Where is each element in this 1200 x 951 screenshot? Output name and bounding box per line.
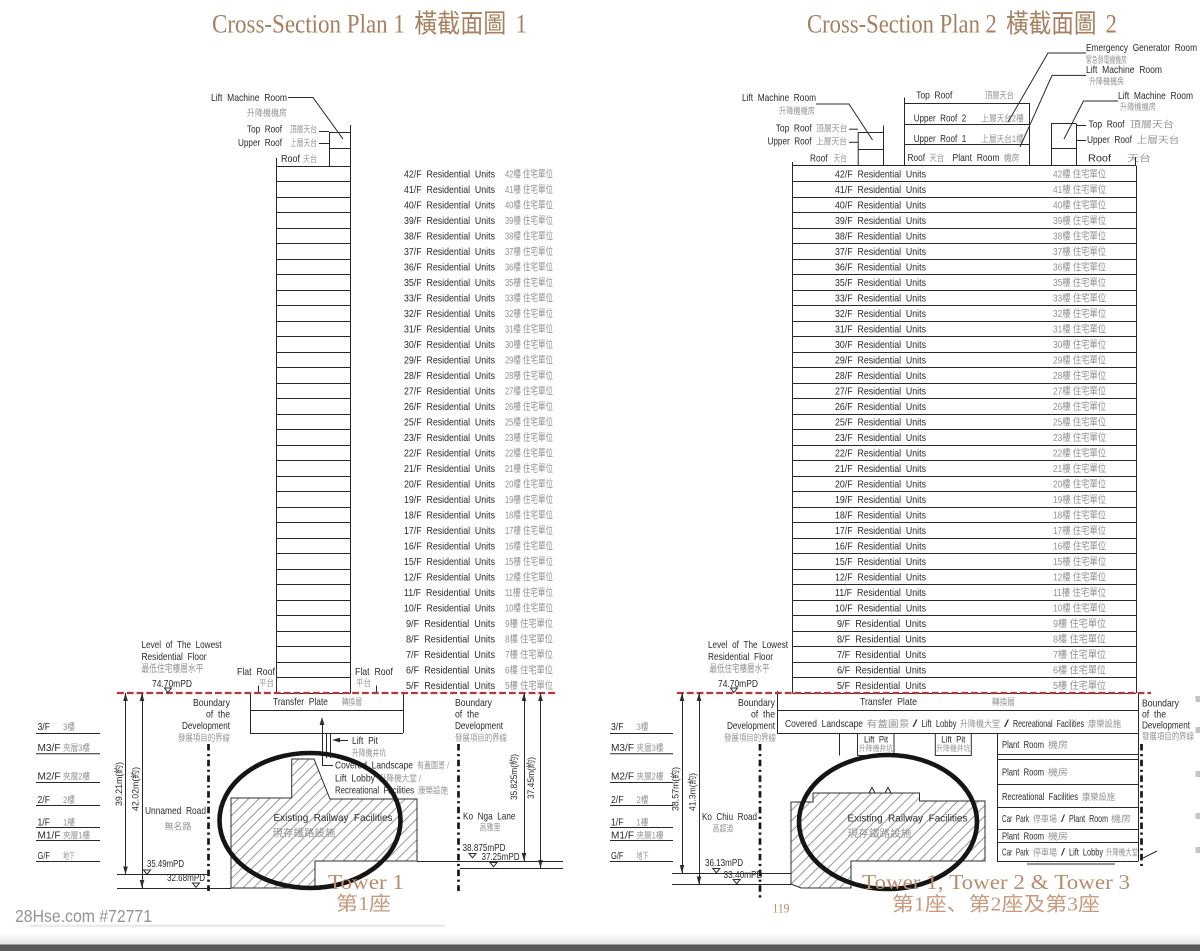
- svg-text:M2/F: M2/F: [38, 771, 61, 783]
- svg-text:Car Park: Car Park: [1002, 847, 1029, 859]
- svg-text:升降機大堂: 升降機大堂: [1106, 847, 1138, 858]
- svg-text:25樓 住宅單位: 25樓 住宅單位: [1053, 416, 1106, 429]
- svg-text:Existing Railway Facilities: Existing Railway Facilities: [274, 812, 393, 824]
- svg-text:38樓 住宅單位: 38樓 住宅單位: [1053, 230, 1106, 243]
- svg-text:Recreational Facilities: Recreational Facilities: [1002, 791, 1078, 803]
- svg-text:32樓 住宅單位: 32樓 住宅單位: [505, 307, 553, 320]
- svg-text:Lift Pit: Lift Pit: [941, 734, 965, 744]
- svg-text:Top Roof: Top Roof: [247, 124, 282, 136]
- svg-text:41/F Residential Units: 41/F Residential Units: [835, 184, 926, 196]
- svg-text:32.68mPD: 32.68mPD: [167, 872, 205, 884]
- svg-text:Covered Landscape: Covered Landscape: [785, 718, 863, 730]
- svg-text:10樓 住宅單位: 10樓 住宅單位: [1053, 602, 1106, 615]
- svg-text:39/F Residential Units: 39/F Residential Units: [835, 215, 926, 227]
- svg-text:康樂設施: 康樂設施: [418, 785, 448, 796]
- svg-text:20/F Residential Units: 20/F Residential Units: [404, 479, 495, 491]
- svg-text:6樓 住宅單位: 6樓 住宅單位: [1053, 664, 1106, 677]
- svg-text:23樓 住宅單位: 23樓 住宅單位: [1053, 431, 1106, 444]
- svg-text:23樓 住宅單位: 23樓 住宅單位: [505, 431, 553, 444]
- svg-text:38樓 住宅單位: 38樓 住宅單位: [505, 230, 553, 243]
- svg-text:36/F Residential Units: 36/F Residential Units: [404, 262, 495, 274]
- svg-text:40樓 住宅單位: 40樓 住宅單位: [505, 199, 553, 212]
- svg-text:Existing Railway Facilities: Existing Railway Facilities: [848, 813, 968, 825]
- svg-text:發展項目的界線: 發展項目的界線: [724, 732, 776, 743]
- svg-text:天台: 天台: [303, 153, 317, 164]
- svg-text:8/F Residential Units: 8/F Residential Units: [837, 634, 926, 646]
- svg-text:Car Park: Car Park: [1002, 813, 1029, 825]
- svg-text:37樓 住宅單位: 37樓 住宅單位: [1053, 245, 1106, 258]
- svg-text:8樓 住宅單位: 8樓 住宅單位: [1053, 633, 1106, 646]
- svg-text:39樓 住宅單位: 39樓 住宅單位: [505, 214, 553, 227]
- svg-text:33/F Residential Units: 33/F Residential Units: [835, 293, 926, 305]
- svg-text:天台: 天台: [834, 153, 848, 164]
- svg-text:機房: 機房: [1004, 152, 1020, 163]
- svg-text:39.21m(約): 39.21m(約): [113, 762, 124, 806]
- svg-text:2樓: 2樓: [63, 794, 75, 805]
- svg-text:42樓 住宅單位: 42樓 住宅單位: [1053, 168, 1106, 181]
- svg-text:Level of The Lowest: Level of The Lowest: [142, 639, 222, 651]
- svg-text:M1/F: M1/F: [611, 830, 634, 842]
- svg-text:15樓 住宅單位: 15樓 住宅單位: [1053, 555, 1106, 568]
- svg-text:Upper Roof 2: Upper Roof 2: [914, 113, 967, 125]
- svg-text:17樓 住宅單位: 17樓 住宅單位: [1053, 524, 1106, 537]
- svg-text:Transfer Plate: Transfer Plate: [860, 696, 917, 708]
- svg-text:7樓 住宅單位: 7樓 住宅單位: [505, 648, 553, 661]
- svg-text:升降機大堂: 升降機大堂: [960, 718, 1000, 729]
- svg-text:3樓: 3樓: [63, 721, 75, 732]
- svg-text:18樓 住宅單位: 18樓 住宅單位: [1053, 509, 1106, 522]
- svg-text:上層天台1樓: 上層天台1樓: [981, 133, 1024, 144]
- svg-text:7/F Residential Units: 7/F Residential Units: [406, 649, 495, 661]
- svg-text:25樓 住宅單位: 25樓 住宅單位: [505, 416, 553, 429]
- svg-text:Lift Machine Room: Lift Machine Room: [211, 92, 287, 104]
- svg-text:2/F: 2/F: [38, 794, 51, 806]
- svg-text:發展項目的界線: 發展項目的界線: [1142, 731, 1194, 742]
- svg-text:機房: 機房: [1048, 831, 1068, 842]
- svg-text:Cross-Section Plan 1 橫截面圖 1: Cross-Section Plan 1 橫截面圖 1: [212, 10, 527, 39]
- svg-text:23/F Residential Units: 23/F Residential Units: [835, 432, 926, 444]
- svg-text:18/F Residential Units: 18/F Residential Units: [835, 510, 926, 522]
- svg-text:發展項目的界線: 發展項目的界線: [178, 732, 230, 743]
- svg-text:26/F Residential Units: 26/F Residential Units: [835, 401, 926, 413]
- svg-text:35.825m(約): 35.825m(約): [508, 754, 519, 800]
- svg-text:30/F Residential Units: 30/F Residential Units: [404, 339, 495, 351]
- svg-text:地下: 地下: [63, 850, 75, 861]
- svg-text:35/F Residential Units: 35/F Residential Units: [404, 277, 495, 289]
- svg-text:of the: of the: [751, 709, 775, 721]
- svg-text:37/F Residential Units: 37/F Residential Units: [835, 246, 926, 258]
- svg-text:35.49mPD: 35.49mPD: [147, 858, 184, 870]
- svg-text:機房: 機房: [1048, 767, 1068, 778]
- svg-text:升降機井坑: 升降機井坑: [859, 743, 893, 753]
- svg-text:現存鐵路設施: 現存鐵路設施: [848, 827, 912, 840]
- svg-text:7/F Residential Units: 7/F Residential Units: [837, 649, 926, 661]
- svg-text:升降機機房: 升降機機房: [1120, 101, 1156, 112]
- svg-text:Lift Lobby: Lift Lobby: [335, 773, 376, 785]
- svg-text:21/F Residential Units: 21/F Residential Units: [835, 463, 926, 475]
- svg-text:19/F Residential Units: 19/F Residential Units: [404, 494, 495, 506]
- svg-text:35樓 住宅單位: 35樓 住宅單位: [1053, 276, 1106, 289]
- svg-text:第1座、第2座及第3座: 第1座、第2座及第3座: [892, 894, 1100, 916]
- svg-text:M1/F: M1/F: [38, 830, 61, 842]
- svg-text:16/F Residential Units: 16/F Residential Units: [404, 541, 495, 553]
- svg-text:19樓 住宅單位: 19樓 住宅單位: [505, 493, 553, 506]
- svg-text:32/F Residential Units: 32/F Residential Units: [835, 308, 926, 320]
- svg-text:12樓 住宅單位: 12樓 住宅單位: [1053, 571, 1106, 584]
- svg-text:康樂設施: 康樂設施: [1088, 718, 1121, 729]
- svg-text:36樓 住宅單位: 36樓 住宅單位: [505, 261, 553, 274]
- svg-text:1/F: 1/F: [38, 817, 51, 829]
- svg-text:天台: 天台: [1127, 153, 1151, 164]
- svg-text:41樓 住宅單位: 41樓 住宅單位: [1053, 183, 1106, 196]
- svg-text:夾層1樓: 夾層1樓: [63, 830, 90, 841]
- svg-text:15/F Residential Units: 15/F Residential Units: [404, 556, 495, 568]
- svg-text:Recreational Facilities: Recreational Facilities: [335, 785, 414, 797]
- svg-text:Upper Roof: Upper Roof: [238, 137, 282, 149]
- svg-text:Top Roof: Top Roof: [776, 123, 812, 135]
- svg-text:26樓 住宅單位: 26樓 住宅單位: [505, 400, 553, 413]
- svg-text:10樓 住宅單位: 10樓 住宅單位: [505, 602, 553, 615]
- svg-text:8樓 住宅單位: 8樓 住宅單位: [505, 633, 553, 646]
- svg-text:Cross-Section Plan 2 橫截面圖 2: Cross-Section Plan 2 橫截面圖 2: [807, 10, 1117, 39]
- svg-text:22樓 住宅單位: 22樓 住宅單位: [505, 447, 553, 460]
- svg-text:9/F Residential Units: 9/F Residential Units: [837, 618, 926, 630]
- svg-text:/: /: [1004, 718, 1009, 730]
- svg-text:19樓 住宅單位: 19樓 住宅單位: [1053, 493, 1106, 506]
- svg-text:29樓 住宅單位: 29樓 住宅單位: [505, 354, 553, 367]
- svg-text:Development: Development: [455, 720, 503, 732]
- svg-text:36樓 住宅單位: 36樓 住宅單位: [1053, 261, 1106, 274]
- svg-text:37樓 住宅單位: 37樓 住宅單位: [505, 245, 553, 258]
- svg-text:42.02m(約): 42.02m(約): [130, 767, 141, 811]
- svg-text:42樓 住宅單位: 42樓 住宅單位: [505, 168, 553, 181]
- svg-text:頂層天台: 頂層天台: [290, 124, 317, 135]
- svg-text:Boundary: Boundary: [455, 697, 493, 709]
- svg-text:20樓 住宅單位: 20樓 住宅單位: [1053, 478, 1106, 491]
- svg-text:/: /: [1061, 813, 1065, 825]
- svg-text:Roof: Roof: [1088, 153, 1111, 165]
- svg-text:轉換層: 轉換層: [992, 696, 1015, 707]
- svg-text:119: 119: [773, 901, 790, 916]
- svg-text:Plant Room: Plant Room: [1069, 813, 1108, 825]
- svg-text:最低住宅樓層水平: 最低住宅樓層水平: [142, 662, 204, 675]
- svg-text:Top Roof: Top Roof: [916, 90, 952, 102]
- svg-text:39樓 住宅單位: 39樓 住宅單位: [1053, 214, 1106, 227]
- svg-text:G/F: G/F: [38, 850, 51, 862]
- svg-text:18/F Residential Units: 18/F Residential Units: [404, 510, 495, 522]
- svg-text:6/F Residential Units: 6/F Residential Units: [406, 665, 495, 677]
- svg-text:Unnamed Road: Unnamed Road: [145, 805, 206, 817]
- svg-text:40樓 住宅單位: 40樓 住宅單位: [1053, 199, 1106, 212]
- svg-text:33/F Residential Units: 33/F Residential Units: [404, 293, 495, 305]
- svg-text:of the: of the: [206, 709, 230, 721]
- svg-text:Lift Lobby: Lift Lobby: [1069, 847, 1104, 859]
- svg-text:夾層3樓: 夾層3樓: [637, 742, 664, 753]
- svg-text:27/F Residential Units: 27/F Residential Units: [404, 386, 495, 398]
- svg-text:16樓 住宅單位: 16樓 住宅單位: [505, 540, 553, 553]
- svg-text:6/F Residential Units: 6/F Residential Units: [837, 665, 926, 677]
- svg-text:Flat Roof: Flat Roof: [355, 666, 393, 678]
- svg-text:10/F Residential Units: 10/F Residential Units: [404, 603, 495, 615]
- svg-text:Tower 1, Tower 2 & Tower 3: Tower 1, Tower 2 & Tower 3: [862, 870, 1130, 894]
- svg-text:Plant Room: Plant Room: [1002, 767, 1044, 779]
- svg-text:30/F Residential Units: 30/F Residential Units: [835, 339, 926, 351]
- svg-text:1樓: 1樓: [63, 817, 75, 828]
- svg-text:74.70mPD: 74.70mPD: [718, 678, 758, 690]
- svg-text:高超道: 高超道: [713, 823, 734, 834]
- svg-text:夾層3樓: 夾層3樓: [63, 742, 90, 753]
- svg-text:轉換層: 轉換層: [342, 696, 362, 707]
- svg-text:12樓 住宅單位: 12樓 住宅單位: [505, 571, 553, 584]
- svg-text:Roof: Roof: [810, 153, 828, 165]
- svg-text:31/F Residential Units: 31/F Residential Units: [404, 324, 495, 336]
- svg-text:12/F Residential Units: 12/F Residential Units: [835, 572, 926, 584]
- svg-text:38.57m(約): 38.57m(約): [670, 767, 681, 811]
- svg-text:康樂設施: 康樂設施: [1082, 791, 1115, 802]
- svg-text:無名路: 無名路: [165, 821, 192, 832]
- svg-text:Recreational Facilities: Recreational Facilities: [1013, 718, 1084, 730]
- svg-text:23/F Residential Units: 23/F Residential Units: [404, 432, 495, 444]
- svg-text:33.40mPD: 33.40mPD: [724, 869, 763, 881]
- svg-text:12/F Residential Units: 12/F Residential Units: [404, 572, 495, 584]
- svg-text:7樓 住宅單位: 7樓 住宅單位: [1053, 648, 1106, 661]
- svg-text:Lift Pit: Lift Pit: [352, 735, 378, 747]
- svg-text:30樓 住宅單位: 30樓 住宅單位: [505, 338, 553, 351]
- svg-text:25/F Residential Units: 25/F Residential Units: [835, 417, 926, 429]
- svg-text:Upper Roof: Upper Roof: [768, 136, 812, 148]
- svg-text:11/F Residential Units: 11/F Residential Units: [404, 587, 495, 599]
- svg-text:第1座: 第1座: [336, 893, 391, 915]
- svg-text:41/F Residential Units: 41/F Residential Units: [404, 184, 495, 196]
- svg-text:Residential Floor: Residential Floor: [708, 651, 773, 663]
- svg-text:31樓 住宅單位: 31樓 住宅單位: [1053, 323, 1106, 336]
- svg-text:28/F Residential Units: 28/F Residential Units: [835, 370, 926, 382]
- svg-text:升降機機房: 升降機機房: [779, 105, 815, 116]
- svg-text:31樓 住宅單位: 31樓 住宅單位: [505, 323, 553, 336]
- svg-text:28樓 住宅單位: 28樓 住宅單位: [505, 369, 553, 382]
- svg-text:Lift Pit: Lift Pit: [864, 734, 888, 744]
- svg-text:1/F: 1/F: [611, 817, 624, 829]
- svg-text:Covered Landscape: Covered Landscape: [335, 760, 413, 772]
- svg-text:/: /: [1061, 847, 1065, 859]
- svg-text:機房: 機房: [1111, 813, 1131, 824]
- svg-text:9/F Residential Units: 9/F Residential Units: [406, 618, 495, 630]
- svg-text:28/F Residential Units: 28/F Residential Units: [404, 370, 495, 382]
- svg-text:33樓 住宅單位: 33樓 住宅單位: [1053, 292, 1106, 305]
- svg-text:有蓋園景: 有蓋園景: [867, 718, 910, 729]
- svg-text:26樓 住宅單位: 26樓 住宅單位: [1053, 400, 1106, 413]
- svg-text:Lift Machine Room: Lift Machine Room: [1086, 64, 1162, 76]
- svg-text:停車場: 停車場: [1033, 813, 1057, 824]
- svg-text:20樓 住宅單位: 20樓 住宅單位: [505, 478, 553, 491]
- svg-text:升降機井坑: 升降機井坑: [352, 747, 386, 758]
- svg-text:21樓 住宅單位: 21樓 住宅單位: [505, 462, 553, 475]
- svg-text:G/F: G/F: [611, 850, 624, 862]
- svg-text:Level of The Lowest: Level of The Lowest: [708, 639, 788, 651]
- svg-text:21樓 住宅單位: 21樓 住宅單位: [1053, 462, 1106, 475]
- svg-text:Plant Room: Plant Room: [1002, 831, 1044, 843]
- svg-text:夾層1樓: 夾層1樓: [637, 830, 664, 841]
- svg-text:27/F Residential Units: 27/F Residential Units: [835, 386, 926, 398]
- svg-text:M2/F: M2/F: [611, 771, 634, 783]
- svg-text:Boundary: Boundary: [738, 697, 776, 709]
- svg-text:36/F Residential Units: 36/F Residential Units: [835, 262, 926, 274]
- svg-text:42/F Residential Units: 42/F Residential Units: [835, 169, 926, 181]
- svg-text:38/F Residential Units: 38/F Residential Units: [404, 231, 495, 243]
- svg-text:8/F Residential Units: 8/F Residential Units: [406, 634, 495, 646]
- svg-text:30樓 住宅單位: 30樓 住宅單位: [1053, 338, 1106, 351]
- svg-text:Tower 1: Tower 1: [328, 870, 404, 894]
- svg-text:16樓 住宅單位: 16樓 住宅單位: [1053, 540, 1106, 553]
- svg-text:17樓 住宅單位: 17樓 住宅單位: [505, 524, 553, 537]
- svg-text:上層天台: 上層天台: [1137, 134, 1180, 145]
- svg-text:Upper Roof: Upper Roof: [1087, 134, 1132, 146]
- svg-text:Ko Chiu Road: Ko Chiu Road: [702, 811, 757, 823]
- svg-text:41樓 住宅單位: 41樓 住宅單位: [505, 183, 553, 196]
- svg-text:Transfer Plate: Transfer Plate: [273, 696, 328, 708]
- svg-text:Development: Development: [182, 720, 230, 732]
- svg-text:26/F Residential Units: 26/F Residential Units: [404, 401, 495, 413]
- svg-text:31/F Residential Units: 31/F Residential Units: [835, 324, 926, 336]
- svg-text:6樓 住宅單位: 6樓 住宅單位: [505, 664, 553, 677]
- svg-text:Roof: Roof: [281, 153, 300, 165]
- svg-text:11樓 住宅單位: 11樓 住宅單位: [505, 586, 553, 599]
- svg-text:Lift Machine Room: Lift Machine Room: [742, 92, 816, 104]
- svg-text:17/F Residential Units: 17/F Residential Units: [835, 525, 926, 537]
- svg-text:11/F Residential Units: 11/F Residential Units: [835, 587, 926, 599]
- svg-text:9樓 住宅單位: 9樓 住宅單位: [1053, 617, 1106, 630]
- svg-text:Flat Roof: Flat Roof: [237, 666, 275, 678]
- svg-text:35樓 住宅單位: 35樓 住宅單位: [505, 276, 553, 289]
- svg-text:Emergency Generator Room: Emergency Generator Room: [1086, 42, 1197, 54]
- svg-text:9樓 住宅單位: 9樓 住宅單位: [505, 617, 553, 630]
- svg-text:18樓 住宅單位: 18樓 住宅單位: [505, 509, 553, 522]
- svg-text:夾層2樓: 夾層2樓: [637, 771, 664, 782]
- svg-text:39/F Residential Units: 39/F Residential Units: [404, 215, 495, 227]
- svg-text:37.25mPD: 37.25mPD: [482, 851, 520, 863]
- svg-text:平台: 平台: [356, 677, 371, 688]
- svg-text:40/F Residential Units: 40/F Residential Units: [835, 200, 926, 212]
- svg-text:高雅里: 高雅里: [480, 822, 501, 833]
- svg-text:11樓 住宅單位: 11樓 住宅單位: [1053, 586, 1106, 599]
- svg-text:Plant Room: Plant Room: [953, 152, 1000, 164]
- svg-text:36.13mPD: 36.13mPD: [705, 857, 743, 869]
- svg-text:Top Roof: Top Roof: [1089, 119, 1125, 131]
- svg-text:Upper Roof 1: Upper Roof 1: [914, 133, 967, 145]
- svg-text:28Hse.com #72771: 28Hse.com #72771: [15, 906, 152, 926]
- svg-text:Plant Room: Plant Room: [1002, 739, 1044, 751]
- svg-text:20/F Residential Units: 20/F Residential Units: [835, 479, 926, 491]
- svg-text:Lift Machine Room: Lift Machine Room: [1118, 90, 1193, 102]
- svg-text:Roof: Roof: [908, 152, 926, 164]
- svg-text:37.45m(約): 37.45m(約): [525, 757, 536, 799]
- svg-text:Boundary: Boundary: [193, 697, 231, 709]
- svg-text:停車場: 停車場: [1033, 847, 1057, 858]
- svg-text:上層天台2樓: 上層天台2樓: [981, 113, 1024, 124]
- svg-text:夾層2樓: 夾層2樓: [63, 771, 90, 782]
- svg-text:3/F: 3/F: [611, 721, 624, 733]
- svg-text:3/F: 3/F: [38, 721, 51, 733]
- svg-text:上層天台: 上層天台: [290, 137, 317, 148]
- svg-text:Ko Nga Lane: Ko Nga Lane: [463, 811, 516, 823]
- svg-text:升降機機房: 升降機機房: [247, 107, 287, 118]
- svg-text:升降機井坑: 升降機井坑: [936, 743, 970, 753]
- svg-text:22/F Residential Units: 22/F Residential Units: [404, 448, 495, 460]
- svg-text:有蓋園景 /: 有蓋園景 /: [417, 760, 449, 771]
- svg-text:1樓: 1樓: [637, 817, 649, 828]
- svg-text:5/F Residential Units: 5/F Residential Units: [406, 680, 495, 692]
- svg-text:10/F Residential Units: 10/F Residential Units: [835, 603, 926, 615]
- svg-text:19/F Residential Units: 19/F Residential Units: [835, 494, 926, 506]
- svg-text:地下: 地下: [637, 850, 649, 861]
- svg-text:5樓 住宅單位: 5樓 住宅單位: [505, 679, 553, 692]
- svg-text:M3/F: M3/F: [611, 742, 634, 754]
- svg-text:25/F Residential Units: 25/F Residential Units: [404, 417, 495, 429]
- svg-text:升降機機房: 升降機機房: [1089, 76, 1124, 87]
- svg-text:40/F Residential Units: 40/F Residential Units: [404, 200, 495, 212]
- svg-text:現存鐵路設施: 現存鐵路設施: [273, 827, 336, 840]
- svg-text:27樓 住宅單位: 27樓 住宅單位: [1053, 385, 1106, 398]
- svg-text:平台: 平台: [259, 677, 274, 688]
- svg-text:42/F Residential Units: 42/F Residential Units: [404, 169, 495, 181]
- svg-text:of the: of the: [455, 709, 479, 721]
- svg-text:32/F Residential Units: 32/F Residential Units: [404, 308, 495, 320]
- svg-text:38/F Residential Units: 38/F Residential Units: [835, 231, 926, 243]
- svg-text:37/F Residential Units: 37/F Residential Units: [404, 246, 495, 258]
- svg-text:41.3m(約): 41.3m(約): [687, 773, 698, 811]
- svg-text:33樓 住宅單位: 33樓 住宅單位: [505, 292, 553, 305]
- svg-text:22樓 住宅單位: 22樓 住宅單位: [1053, 447, 1106, 460]
- svg-text:15樓 住宅單位: 15樓 住宅單位: [505, 555, 553, 568]
- svg-text:Development: Development: [727, 720, 775, 732]
- svg-text:15/F Residential Units: 15/F Residential Units: [835, 556, 926, 568]
- svg-text:Development: Development: [1142, 720, 1190, 732]
- svg-text:發展項目的界線: 發展項目的界線: [455, 732, 507, 743]
- svg-text:2/F: 2/F: [611, 794, 624, 806]
- svg-text:5/F Residential Units: 5/F Residential Units: [837, 680, 926, 692]
- svg-text:32樓 住宅單位: 32樓 住宅單位: [1053, 307, 1106, 320]
- svg-text:17/F Residential Units: 17/F Residential Units: [404, 525, 495, 537]
- svg-text:5樓 住宅單位: 5樓 住宅單位: [1053, 679, 1106, 692]
- svg-text:機房: 機房: [1048, 739, 1068, 750]
- svg-text:/: /: [913, 718, 918, 730]
- svg-text:28樓 住宅單位: 28樓 住宅單位: [1053, 369, 1106, 382]
- svg-text:頂層天台: 頂層天台: [816, 123, 848, 134]
- svg-text:2樓: 2樓: [637, 794, 649, 805]
- svg-text:Residential Floor: Residential Floor: [142, 651, 207, 663]
- svg-text:74.70mPD: 74.70mPD: [152, 678, 192, 690]
- svg-text:上層天台: 上層天台: [816, 136, 847, 147]
- svg-text:頂層天台: 頂層天台: [985, 90, 1014, 101]
- svg-text:35/F Residential Units: 35/F Residential Units: [835, 277, 926, 289]
- svg-text:29/F Residential Units: 29/F Residential Units: [835, 355, 926, 367]
- svg-text:29樓 住宅單位: 29樓 住宅單位: [1053, 354, 1106, 367]
- svg-text:最低住宅樓層水平: 最低住宅樓層水平: [710, 662, 770, 675]
- svg-text:16/F Residential Units: 16/F Residential Units: [835, 541, 926, 553]
- svg-text:27樓 住宅單位: 27樓 住宅單位: [505, 385, 553, 398]
- svg-text:M3/F: M3/F: [38, 742, 61, 754]
- svg-text:29/F Residential Units: 29/F Residential Units: [404, 355, 495, 367]
- svg-text:Lift Lobby: Lift Lobby: [922, 718, 958, 730]
- svg-text:22/F Residential Units: 22/F Residential Units: [835, 448, 926, 460]
- svg-text:頂層天台: 頂層天台: [1130, 119, 1174, 130]
- svg-text:天台: 天台: [929, 152, 944, 163]
- svg-text:3樓: 3樓: [637, 721, 649, 732]
- svg-text:21/F Residential Units: 21/F Residential Units: [404, 463, 495, 475]
